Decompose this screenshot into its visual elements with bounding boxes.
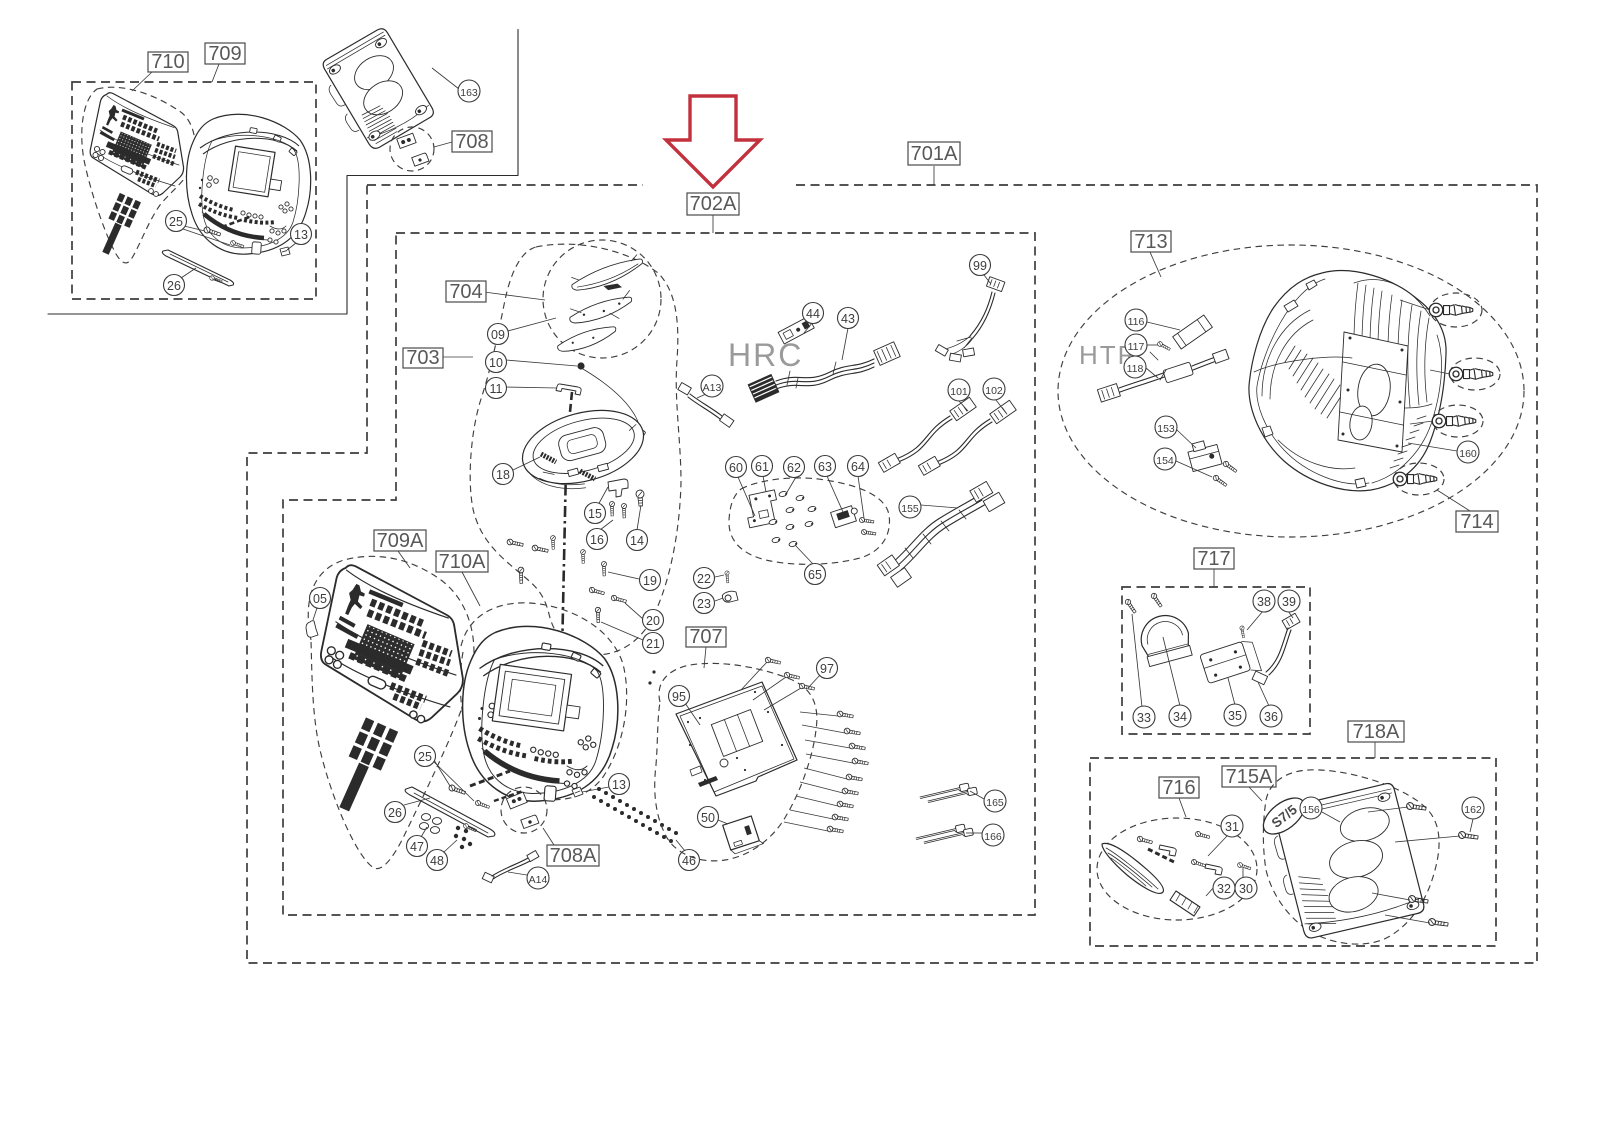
svg-text:11: 11 — [490, 382, 503, 396]
svg-text:13: 13 — [294, 228, 308, 242]
svg-text:25: 25 — [418, 750, 432, 764]
svg-text:A13: A13 — [703, 382, 722, 394]
svg-text:160: 160 — [1459, 448, 1477, 460]
svg-text:23: 23 — [697, 597, 711, 611]
svg-text:39: 39 — [1282, 595, 1296, 609]
svg-text:116: 116 — [1128, 316, 1145, 328]
svg-text:716: 716 — [1162, 777, 1195, 799]
svg-text:166: 166 — [984, 831, 1002, 843]
svg-text:162: 162 — [1464, 804, 1482, 816]
svg-text:14: 14 — [630, 534, 644, 548]
svg-text:13: 13 — [612, 778, 626, 792]
svg-text:47: 47 — [410, 840, 424, 854]
svg-text:708: 708 — [455, 131, 488, 153]
svg-text:165: 165 — [986, 797, 1004, 809]
svg-text:99: 99 — [973, 259, 987, 273]
svg-text:717: 717 — [1197, 548, 1230, 570]
svg-text:155: 155 — [901, 503, 919, 515]
svg-text:26: 26 — [388, 806, 402, 820]
svg-text:16: 16 — [590, 533, 604, 547]
svg-text:26: 26 — [167, 279, 181, 293]
svg-text:25: 25 — [169, 215, 183, 229]
svg-text:48: 48 — [430, 854, 444, 868]
svg-text:50: 50 — [701, 811, 715, 825]
svg-text:33: 33 — [1137, 711, 1151, 725]
svg-text:10: 10 — [489, 356, 503, 370]
svg-text:60: 60 — [729, 461, 743, 475]
svg-text:30: 30 — [1239, 882, 1253, 896]
svg-text:701A: 701A — [911, 143, 958, 165]
svg-text:63: 63 — [818, 460, 832, 474]
svg-text:05: 05 — [313, 592, 327, 606]
svg-text:38: 38 — [1257, 595, 1271, 609]
svg-text:715A: 715A — [1226, 766, 1273, 788]
svg-text:31: 31 — [1225, 820, 1239, 834]
svg-text:718A: 718A — [1353, 721, 1400, 743]
svg-text:46: 46 — [682, 854, 696, 868]
svg-text:117: 117 — [1128, 341, 1145, 353]
svg-text:21: 21 — [646, 637, 660, 651]
svg-text:710A: 710A — [439, 551, 486, 573]
svg-text:22: 22 — [697, 572, 711, 586]
svg-text:64: 64 — [851, 460, 865, 474]
svg-text:35: 35 — [1228, 709, 1242, 723]
svg-text:156: 156 — [1302, 804, 1320, 816]
svg-text:A14: A14 — [529, 874, 548, 886]
svg-text:15: 15 — [588, 507, 602, 521]
svg-text:62: 62 — [787, 461, 801, 475]
svg-text:20: 20 — [646, 614, 660, 628]
svg-text:707: 707 — [689, 626, 722, 648]
svg-text:710: 710 — [151, 51, 184, 73]
svg-text:101: 101 — [950, 386, 968, 398]
svg-text:709A: 709A — [377, 530, 424, 552]
svg-text:714: 714 — [1460, 511, 1493, 533]
svg-text:708A: 708A — [550, 845, 597, 867]
svg-text:95: 95 — [672, 690, 686, 704]
svg-text:703: 703 — [406, 347, 439, 369]
svg-text:102: 102 — [985, 385, 1003, 397]
svg-text:34: 34 — [1173, 710, 1187, 724]
svg-text:44: 44 — [806, 307, 820, 321]
svg-text:713: 713 — [1134, 231, 1167, 253]
svg-text:19: 19 — [643, 574, 657, 588]
svg-text:154: 154 — [1156, 455, 1174, 467]
svg-text:43: 43 — [841, 312, 855, 326]
svg-text:32: 32 — [1217, 882, 1231, 896]
svg-text:153: 153 — [1157, 423, 1175, 435]
svg-text:709: 709 — [208, 43, 241, 65]
svg-text:704: 704 — [449, 281, 482, 303]
svg-text:HRC: HRC — [728, 337, 803, 373]
svg-text:18: 18 — [496, 468, 510, 482]
svg-text:97: 97 — [820, 662, 834, 676]
svg-text:61: 61 — [755, 460, 769, 474]
svg-text:36: 36 — [1264, 710, 1278, 724]
svg-text:163: 163 — [460, 87, 478, 99]
svg-text:118: 118 — [1127, 363, 1144, 375]
svg-text:09: 09 — [491, 328, 505, 342]
svg-text:702A: 702A — [690, 193, 737, 215]
svg-text:65: 65 — [808, 568, 822, 582]
